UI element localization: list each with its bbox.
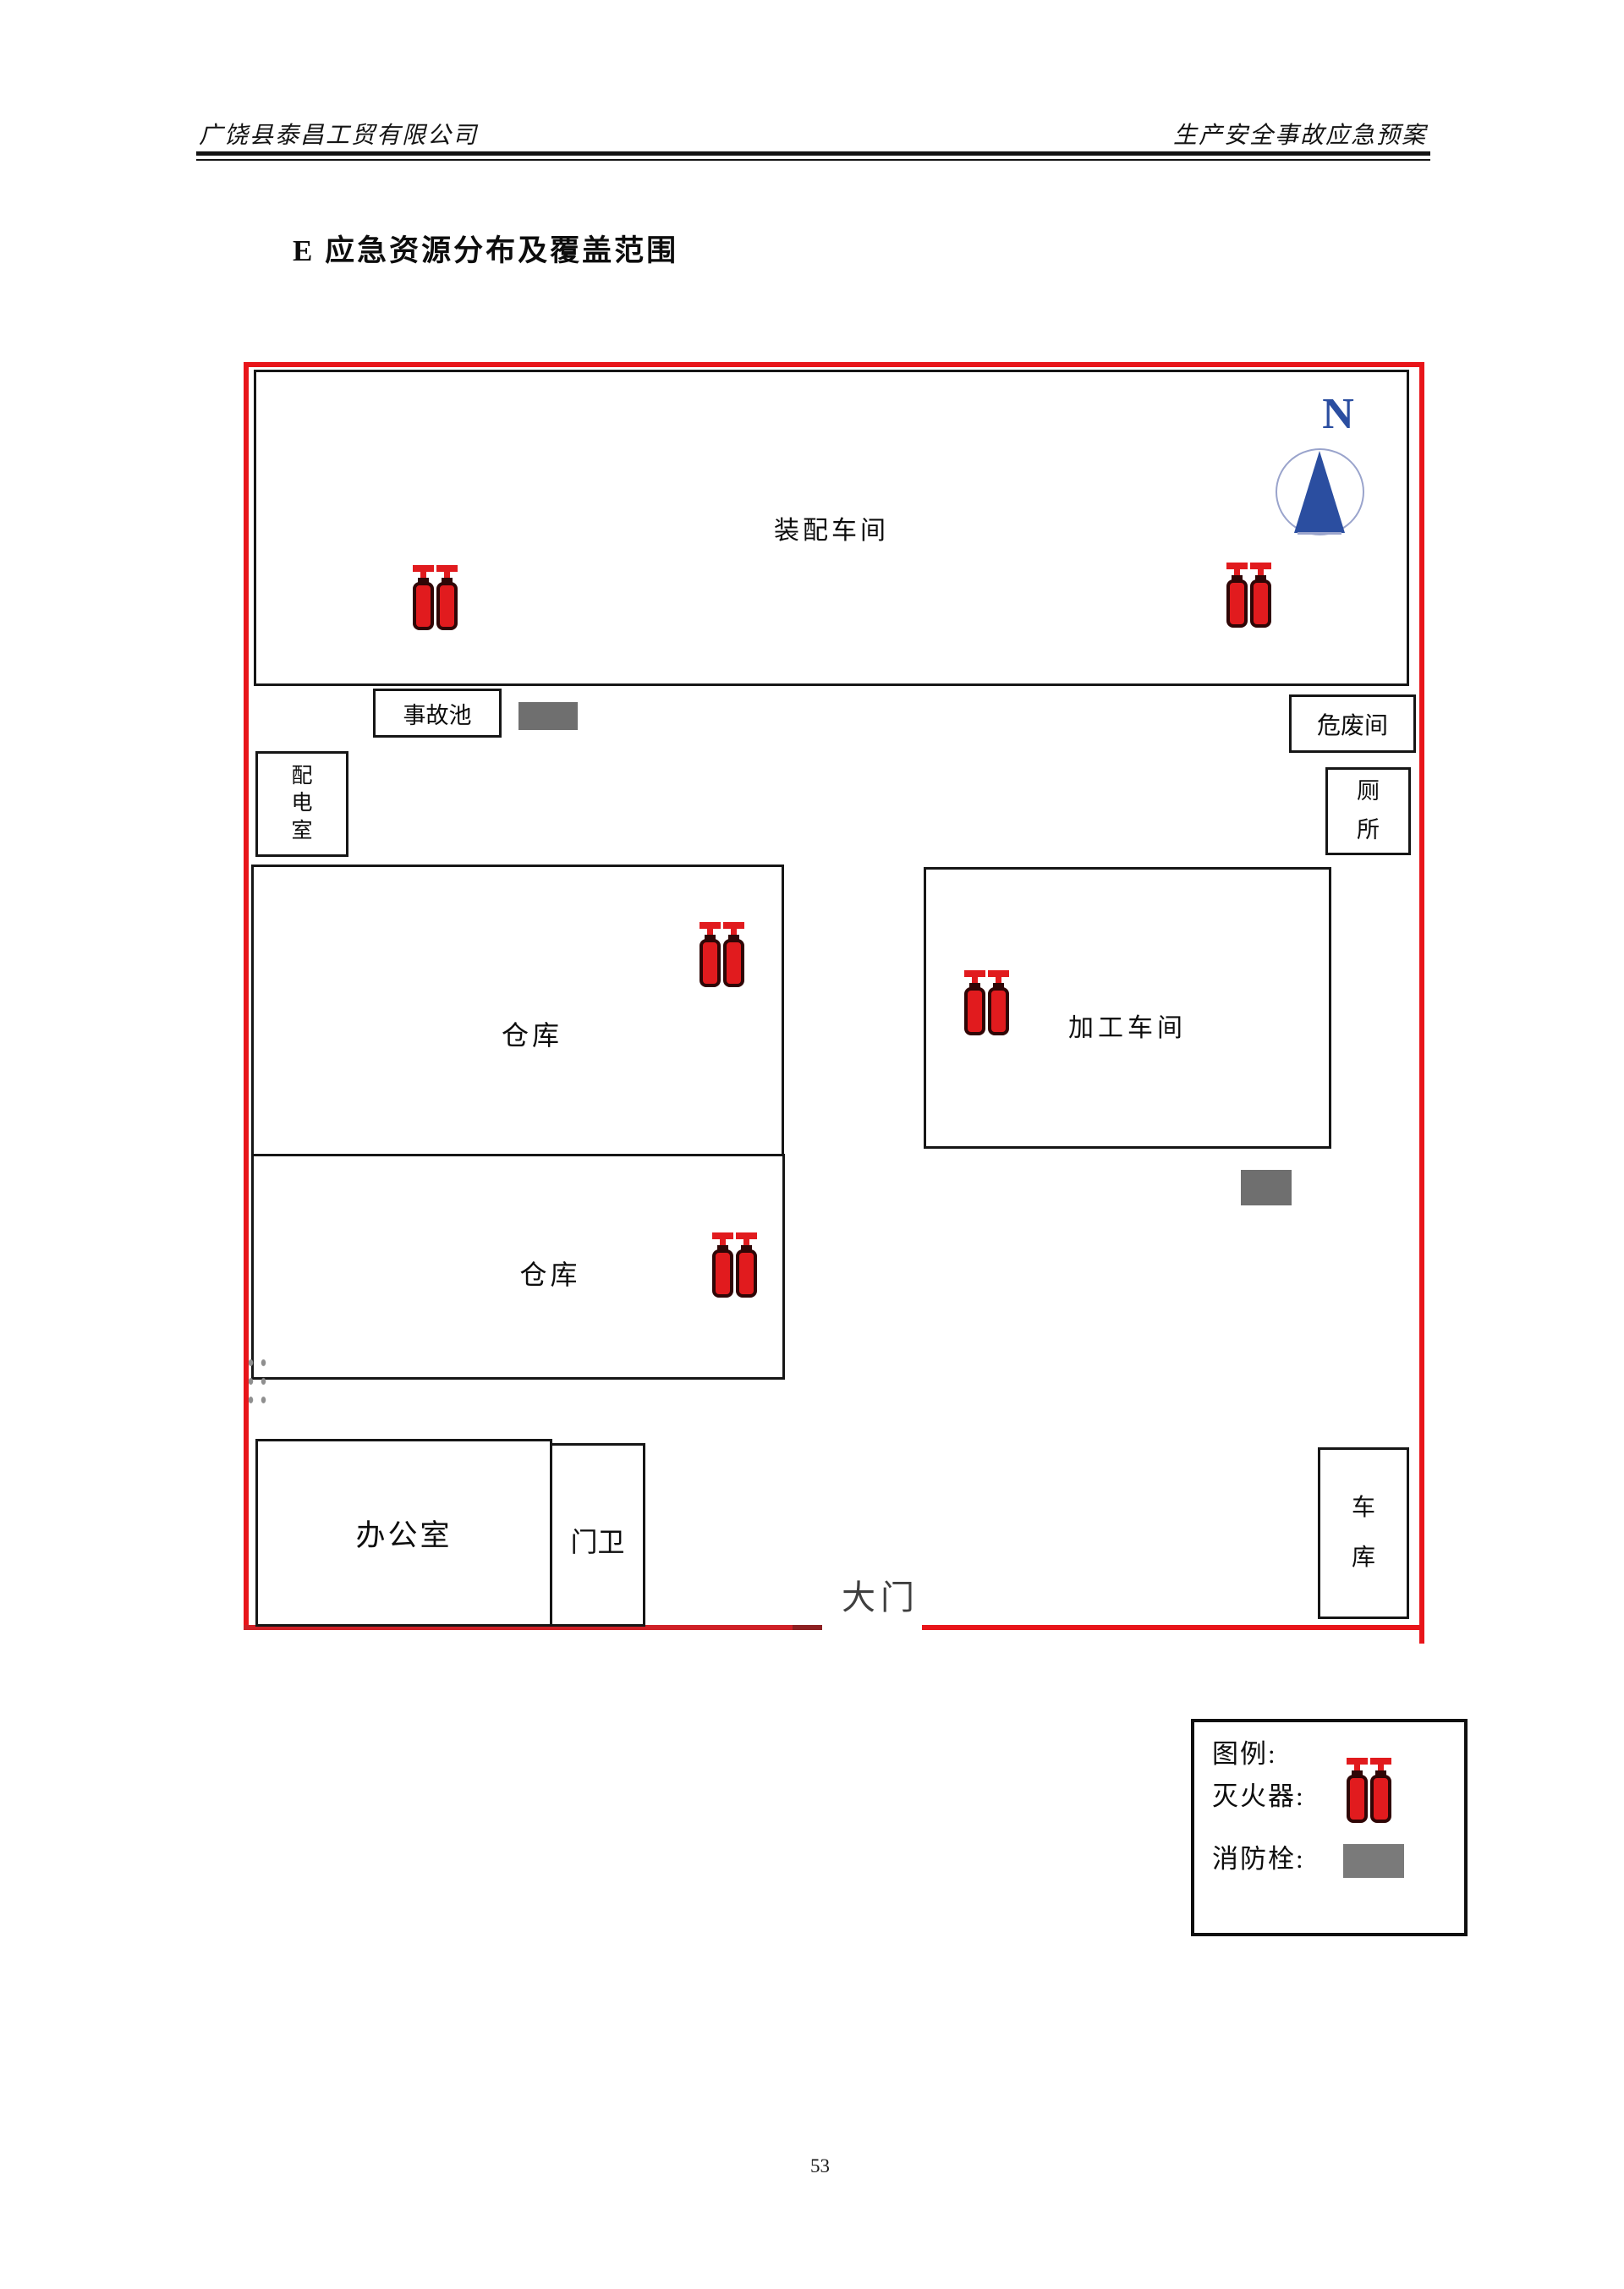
fire-hydrant-icon — [518, 702, 578, 730]
extinguisher-bottle — [1347, 1758, 1368, 1824]
room-label-power-distribution: 配电室 — [290, 763, 314, 846]
extinguisher-bottle — [712, 1232, 733, 1298]
extinguisher-bottle — [988, 970, 1009, 1036]
extinguisher-bottle — [723, 922, 744, 988]
extinguisher-bottle — [736, 1232, 757, 1298]
fire-hydrant-icon — [1241, 1170, 1292, 1205]
room-label-accident-pool: 事故池 — [403, 697, 472, 730]
room-label-gate-guard: 门卫 — [570, 1521, 624, 1560]
room-label-office: 办公室 — [355, 1512, 452, 1555]
room-label-garage: 车库 — [1351, 1484, 1377, 1584]
room-label-processing-workshop: 加工车间 — [1068, 1007, 1187, 1044]
fire-extinguisher-icon — [712, 1232, 757, 1298]
compass-base-line — [1298, 532, 1341, 535]
extinguisher-bottle — [1226, 563, 1248, 629]
site-boundary-bottom-stub — [793, 1625, 822, 1630]
site-boundary-left — [244, 362, 249, 1630]
page-number: 53 — [810, 2155, 830, 2177]
room-label-warehouse-lower: 仓库 — [519, 1254, 580, 1293]
room-label-warehouse-upper: 仓库 — [502, 1014, 562, 1053]
extinguisher-bottle — [964, 970, 985, 1036]
fire-extinguisher-icon — [1226, 563, 1271, 629]
header-doc-title: 生产安全事故应急预案 — [1173, 117, 1427, 151]
extinguisher-bottle — [1370, 1758, 1391, 1824]
header-rule-thin — [196, 159, 1430, 161]
fire-extinguisher-icon — [413, 565, 458, 631]
section-title: E 应急资源分布及覆盖范围 — [293, 227, 678, 270]
site-boundary-top — [244, 362, 1424, 367]
extinguisher-bottle — [1250, 563, 1271, 629]
main-gate-label: 大门 — [842, 1570, 919, 1619]
room-power-distribution: 配电室 — [255, 751, 348, 857]
room-warehouse-lower: 仓库 — [251, 1154, 785, 1380]
room-garage: 车库 — [1318, 1447, 1409, 1619]
room-label-hazardous-waste: 危废间 — [1317, 707, 1388, 741]
room-label-toilet: 厕所 — [1356, 772, 1381, 850]
compass-north-label: N — [1292, 389, 1385, 439]
legend-title: 图例: — [1212, 1732, 1277, 1770]
header-company: 广饶县泰昌工贸有限公司 — [199, 117, 478, 151]
header-rule-thick — [196, 151, 1430, 156]
room-label-assembly: 装配车间 — [774, 509, 889, 546]
extinguisher-bottle — [700, 922, 721, 988]
room-warehouse-upper: 仓库 — [251, 865, 784, 1156]
extinguisher-bottle — [413, 565, 434, 631]
fire-extinguisher-icon — [700, 922, 744, 988]
legend-hydrant-label: 消防栓: — [1212, 1837, 1305, 1875]
dots-artifact — [242, 1351, 267, 1405]
room-accident-pool: 事故池 — [373, 689, 502, 738]
fire-extinguisher-icon — [964, 970, 1009, 1036]
room-assembly-workshop: 装配车间 — [254, 370, 1409, 686]
room-gate-guard: 门卫 — [550, 1443, 645, 1627]
fire-extinguisher-icon — [1347, 1758, 1391, 1824]
extinguisher-bottle — [436, 565, 458, 631]
document-page: 广饶县泰昌工贸有限公司 生产安全事故应急预案 E 应急资源分布及覆盖范围 装配车… — [0, 0, 1624, 2289]
legend-extinguisher-label: 灭火器: — [1212, 1775, 1305, 1813]
room-toilet: 厕所 — [1325, 767, 1411, 855]
room-hazardous-waste: 危废间 — [1289, 694, 1416, 753]
site-boundary-bottom-right — [922, 1625, 1424, 1630]
site-boundary-right — [1419, 362, 1424, 1644]
fire-hydrant-icon — [1343, 1844, 1404, 1878]
room-office: 办公室 — [255, 1439, 552, 1627]
